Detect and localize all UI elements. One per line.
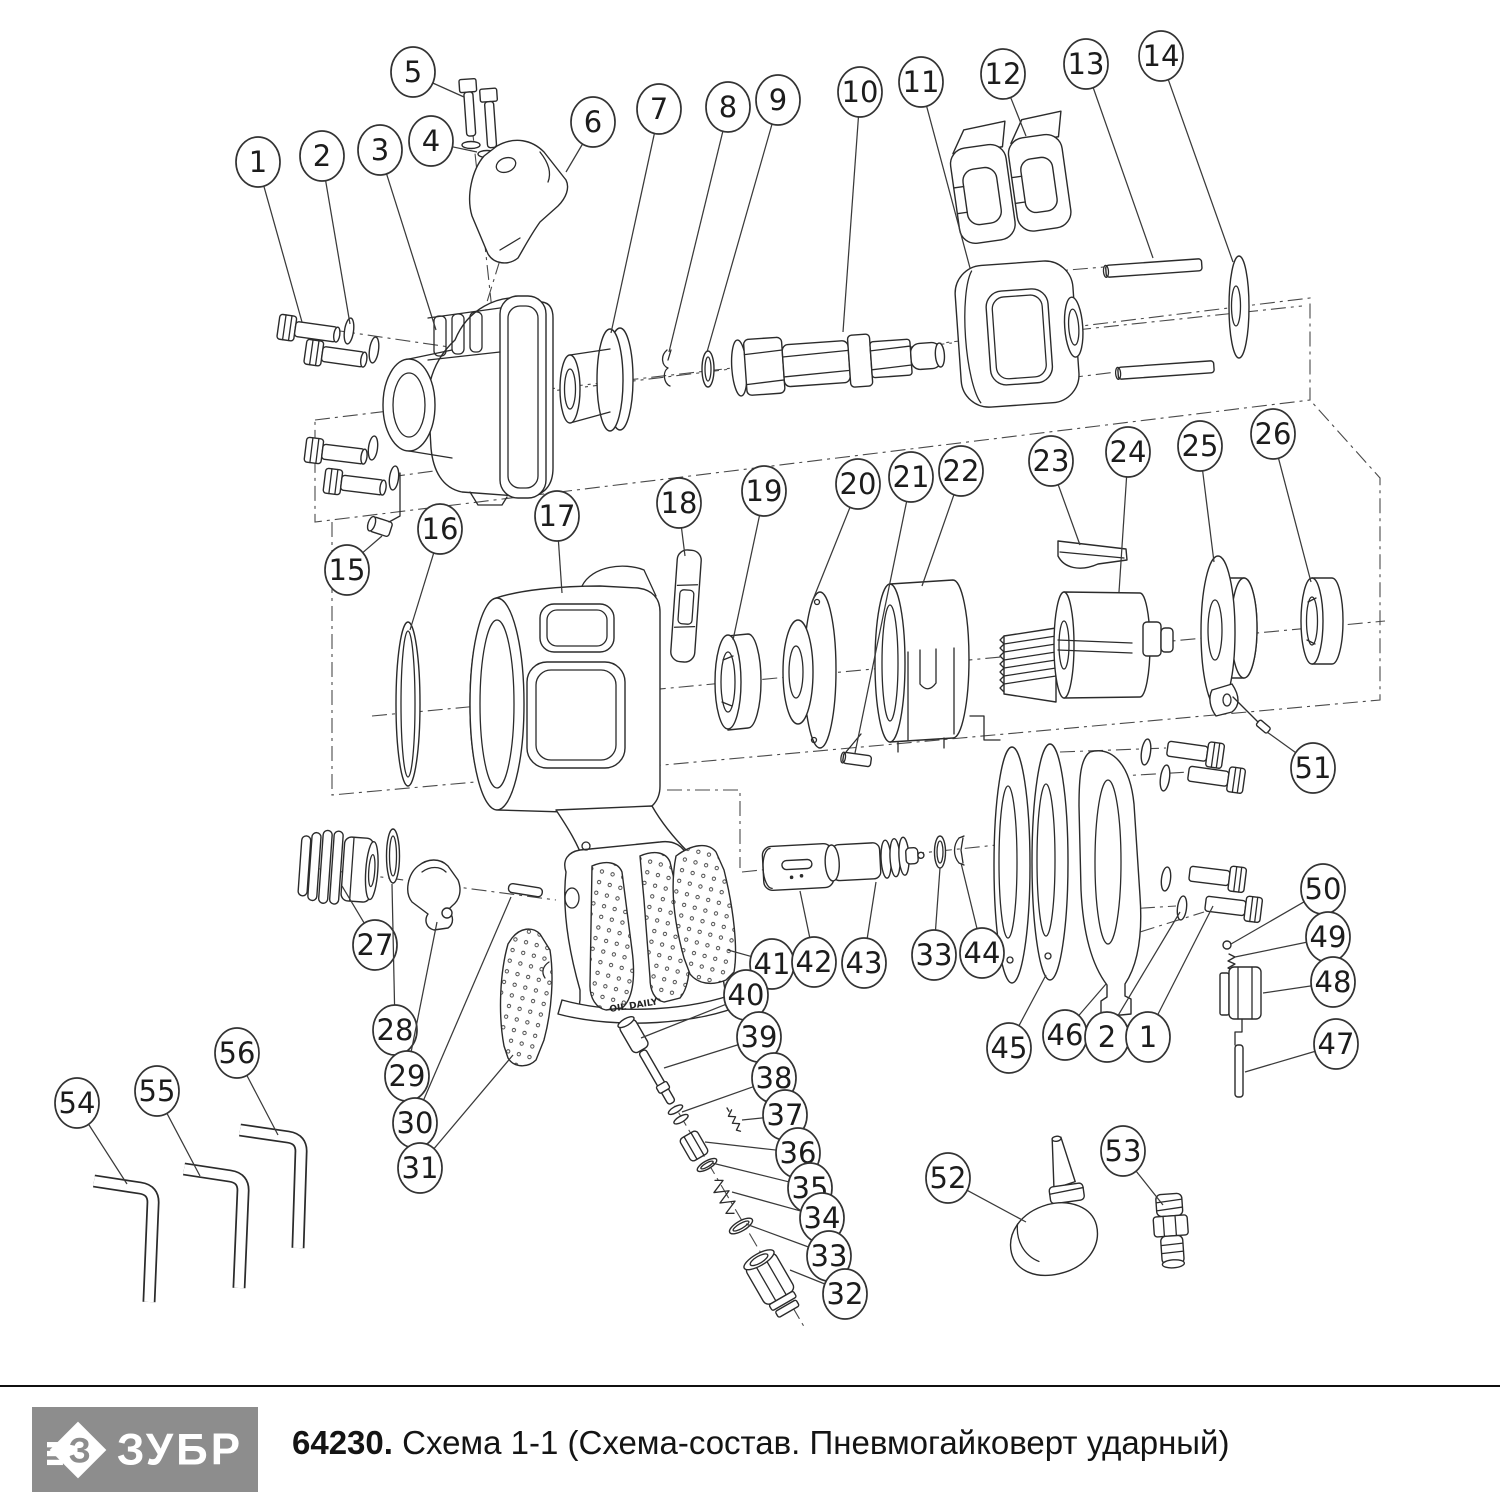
part-36-valve-seat: [679, 1130, 709, 1163]
callout-number-52: 52: [930, 1161, 967, 1195]
callout-25: 25: [1178, 421, 1222, 562]
part-43-reverse-valve-spool: [824, 836, 925, 881]
part-22-cylinder: [875, 580, 1000, 752]
part-34-spring: [709, 1177, 740, 1217]
brand-diamond-icon: З: [47, 1419, 109, 1481]
part-46-exhaust-bracket: [1079, 751, 1141, 1017]
callout-number-18: 18: [661, 486, 698, 520]
callout-number-13: 13: [1068, 47, 1105, 81]
callout-17: 17: [535, 491, 579, 593]
part-7-front-plate: [560, 328, 633, 431]
callout-leader-45: [1019, 975, 1046, 1026]
callout-number-51: 51: [1295, 751, 1332, 785]
part-30-pin: [508, 883, 543, 897]
callout-leader-38: [682, 1087, 753, 1112]
callout-number-46: 46: [1047, 1018, 1084, 1052]
callout-leader-24: [1119, 477, 1127, 592]
part-13-pin: [1103, 259, 1202, 278]
callout-leader-3: [387, 174, 436, 330]
callout-number-20: 20: [840, 467, 877, 501]
callout-18: 18: [657, 478, 701, 556]
callout-number-12: 12: [985, 57, 1022, 91]
part-17-motor-housing: [470, 566, 688, 862]
callout-2: 2: [300, 131, 350, 324]
part-18-rotor-vane: [670, 549, 702, 662]
part-38-valve-washers: [667, 1103, 689, 1126]
callout-leader-6: [566, 144, 583, 172]
svg-text:З: З: [69, 1430, 91, 1470]
callout-number-47: 47: [1318, 1027, 1355, 1061]
callout-leader-25: [1203, 471, 1214, 562]
part-16-o-ring: [396, 622, 420, 786]
callout-leader-33: [936, 868, 940, 930]
part-3-clutch-housing: [383, 296, 553, 505]
callout-number-19: 19: [746, 474, 783, 508]
schematic-caption: 64230. Схема 1-1 (Схема-состав. Пневмога…: [292, 1424, 1229, 1462]
callout-52: 52: [926, 1153, 1026, 1222]
callout-leader-54: [89, 1124, 127, 1184]
callout-23: 23: [1029, 436, 1080, 545]
callout-number-37: 37: [767, 1098, 804, 1132]
part-1-bolt: [1188, 861, 1247, 893]
callout-leader-35: [712, 1163, 789, 1182]
callout-number-48: 48: [1315, 965, 1352, 999]
callout-leader-8: [669, 131, 723, 352]
callout-leader-48: [1263, 986, 1311, 993]
callout-number-44: 44: [964, 936, 1001, 970]
callout-32: 32: [790, 1269, 867, 1319]
part-32-inlet-bushing: [741, 1246, 803, 1320]
part-2-washer: [388, 466, 400, 491]
callout-leader-19: [733, 515, 760, 640]
part-13-pin: [1115, 361, 1214, 380]
callout-42: 42: [792, 891, 836, 987]
callout-number-42: 42: [796, 945, 833, 979]
callout-number-39: 39: [741, 1020, 778, 1054]
part-29-throttle-lever: [408, 860, 460, 930]
callout-15: 15: [325, 536, 382, 595]
callout-45: 45: [987, 975, 1046, 1073]
callout-leader-15: [363, 536, 382, 553]
callout-55: 55: [135, 1066, 200, 1176]
part-2-washer: [1159, 765, 1172, 792]
callout-number-55: 55: [139, 1074, 176, 1108]
parts: OIL DAILY: [94, 77, 1343, 1320]
callout-number-8: 8: [719, 90, 737, 124]
part-1-bolt: [304, 339, 369, 372]
callout-10: 10: [838, 67, 882, 332]
callout-number-15: 15: [329, 553, 366, 587]
part-1-bolt: [1166, 736, 1225, 769]
part-24-rotor: [1000, 592, 1173, 702]
part-2-washer: [367, 436, 379, 461]
part-39-valve-stem: [637, 1048, 677, 1106]
part-2-washer: [1160, 867, 1172, 892]
callout-number-14: 14: [1143, 39, 1180, 73]
callout-33: 33: [912, 868, 956, 980]
callout-leader-13: [1093, 88, 1153, 258]
callout-leader-42: [800, 891, 810, 937]
callout-number-1: 1: [249, 145, 267, 179]
footer: З ЗУБР 64230. Схема 1-1 (Схема-состав. П…: [0, 1340, 1500, 1500]
callout-number-4: 4: [422, 124, 440, 158]
exploded-diagram: OIL DAILY: [0, 0, 1500, 1340]
callout-number-22: 22: [943, 454, 980, 488]
part-42-reverse-valve-block: [762, 843, 834, 891]
callout-leader-43: [867, 882, 876, 938]
callout-53: 53: [1101, 1126, 1163, 1205]
callout-leader-1: [264, 186, 302, 322]
callout-number-23: 23: [1033, 444, 1070, 478]
part-9-o-ring: [702, 351, 714, 387]
callout-8: 8: [669, 82, 750, 352]
callout-number-10: 10: [842, 75, 879, 109]
part-20-front-end-plate: [783, 592, 836, 748]
part-37-spring-pin: [724, 1106, 743, 1132]
callout-number-16: 16: [422, 512, 459, 546]
callout-number-1: 1: [1139, 1020, 1157, 1054]
callout-number-25: 25: [1182, 429, 1219, 463]
part-23-key: [1058, 541, 1127, 568]
callout-6: 6: [566, 97, 615, 172]
callout-leader-23: [1058, 485, 1080, 545]
callout-leader-22: [922, 495, 954, 586]
part-12-hammer: [946, 121, 1022, 245]
callout-leader-2: [326, 181, 350, 324]
footer-divider: [0, 1385, 1500, 1387]
callout-16: 16: [410, 504, 462, 630]
callout-7: 7: [611, 84, 681, 333]
callout-leader-17: [558, 541, 562, 593]
part-27-air-inlet: [297, 829, 380, 907]
callout-leader-16: [410, 553, 434, 630]
callout-56: 56: [215, 1028, 278, 1135]
part-53-air-nipple: [1152, 1193, 1191, 1269]
callout-13: 13: [1064, 39, 1153, 258]
part-19-bearing: [715, 634, 761, 730]
part-1-bolt: [304, 437, 369, 469]
callout-1: 1: [236, 137, 302, 322]
callout-number-49: 49: [1310, 920, 1347, 954]
callout-number-34: 34: [804, 1201, 841, 1235]
callout-54: 54: [55, 1078, 127, 1184]
callout-20: 20: [812, 459, 880, 602]
callout-leader-14: [1168, 80, 1233, 262]
callout-number-7: 7: [650, 92, 668, 126]
callout-number-2: 2: [1098, 1020, 1116, 1054]
callout-leader-20: [812, 507, 850, 602]
callout-leader-37: [742, 1118, 763, 1120]
callout-leader-53: [1136, 1171, 1163, 1205]
callout-number-54: 54: [59, 1086, 96, 1120]
schematic-page: OIL DAILY: [0, 0, 1500, 1500]
part-2-washer: [1140, 739, 1153, 766]
callout-47: 47: [1245, 1019, 1358, 1072]
callout-leader-51: [1267, 732, 1296, 753]
callout-number-53: 53: [1105, 1134, 1142, 1168]
callout-number-9: 9: [769, 83, 787, 117]
part-48-regulator-knob: [1220, 967, 1261, 1019]
callout-number-11: 11: [903, 65, 940, 99]
part-44-clip: [955, 836, 965, 865]
callout-leader-7: [611, 133, 654, 333]
part-2-washer: [368, 337, 381, 364]
part-31-grip-panel: [501, 929, 552, 1066]
callout-leader-29: [411, 922, 437, 1051]
part-11-hammer-cage: [953, 259, 1088, 409]
callout-leader-1: [1158, 906, 1213, 1015]
callout-5: 5: [391, 47, 464, 97]
callout-leader-10: [843, 117, 858, 332]
part-4-washer: [462, 142, 480, 149]
part-55-hex-key: [184, 1169, 243, 1288]
part-28-o-ring: [387, 829, 400, 883]
part-6-trigger: [470, 140, 568, 263]
callout-number-3: 3: [371, 133, 389, 167]
callout-43: 43: [842, 882, 886, 988]
callout-26: 26: [1251, 409, 1311, 582]
callout-leader-47: [1245, 1051, 1315, 1072]
callout-number-31: 31: [402, 1151, 439, 1185]
part-1-bolt: [323, 468, 388, 500]
part-51-detent-pin: [1256, 719, 1271, 733]
callout-number-5: 5: [404, 55, 422, 89]
part-45-exhaust-plate: [994, 744, 1068, 983]
callout-leader-52: [967, 1190, 1026, 1222]
part-47-pin: [1235, 1019, 1243, 1097]
callout-19: 19: [733, 466, 786, 640]
callout-leader-31: [434, 1055, 513, 1149]
part-8-retainer-clip: [663, 350, 671, 386]
callout-leader-36: [705, 1142, 776, 1150]
callout-number-24: 24: [1110, 435, 1147, 469]
callout-leader-26: [1278, 458, 1311, 582]
callout-number-33: 33: [811, 1239, 848, 1273]
schematic-title: Схема 1-1 (Схема-состав. Пневмогайковерт…: [402, 1424, 1229, 1461]
callout-number-17: 17: [539, 499, 576, 533]
part-33-o-ring: [935, 836, 946, 868]
callout-number-26: 26: [1255, 417, 1292, 451]
callout-number-50: 50: [1305, 872, 1342, 906]
callout-number-29: 29: [389, 1059, 426, 1093]
part-26-bearing: [1301, 578, 1343, 664]
callout-number-30: 30: [397, 1106, 434, 1140]
part-5-screw: [459, 77, 501, 149]
callout-number-28: 28: [377, 1013, 414, 1047]
callout-leader-55: [167, 1113, 200, 1176]
part-14-washer-disc: [1229, 256, 1249, 358]
brand-name: ЗУБР: [117, 1424, 243, 1475]
callout-leader-49: [1235, 942, 1306, 957]
callout-number-32: 32: [827, 1277, 864, 1311]
callout-14: 14: [1139, 31, 1233, 262]
callout-leader-44: [961, 863, 977, 929]
part-50-ball: [1223, 941, 1231, 949]
part-10-anvil: [730, 326, 946, 397]
callout-number-33: 33: [916, 938, 953, 972]
part-52-oil-bottle: [996, 1132, 1102, 1280]
callout-number-21: 21: [893, 460, 930, 494]
callout-number-40: 40: [728, 978, 765, 1012]
callout-number-43: 43: [846, 946, 883, 980]
callout-number-6: 6: [584, 105, 602, 139]
brand-logo: З ЗУБР: [32, 1407, 258, 1492]
callout-number-27: 27: [357, 928, 394, 962]
part-54-hex-key: [94, 1181, 153, 1302]
callout-51: 51: [1267, 732, 1335, 793]
callout-48: 48: [1263, 957, 1355, 1007]
product-code: 64230.: [292, 1424, 393, 1461]
callout-number-2: 2: [313, 139, 331, 173]
part-25-rear-end-plate: [1201, 556, 1258, 722]
callout-number-56: 56: [219, 1036, 256, 1070]
callout-number-45: 45: [991, 1031, 1028, 1065]
callout-leader-39: [664, 1045, 738, 1068]
callout-24: 24: [1106, 427, 1150, 592]
